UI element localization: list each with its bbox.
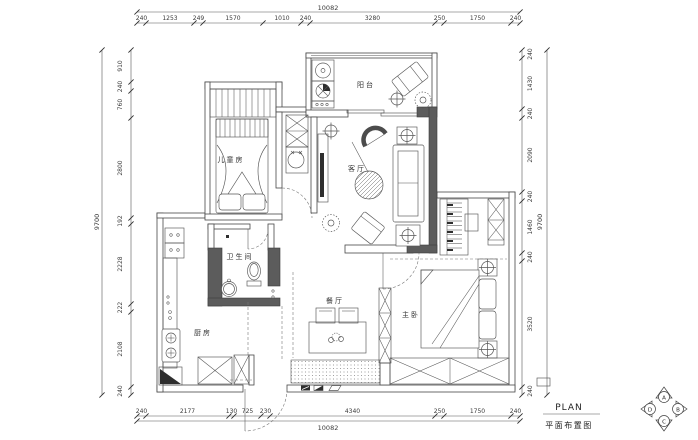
svg-text:240: 240 — [510, 15, 522, 22]
tv — [320, 153, 324, 197]
svg-text:D: D — [648, 408, 652, 414]
ceiling-lamp-icon — [323, 123, 340, 140]
dining-chair — [339, 308, 358, 323]
dining-chair — [316, 308, 335, 323]
dimension-chain-bottom: 10082 240 2177 130 725 230 4340 250 1750… — [136, 408, 522, 432]
sliding-door-panel — [347, 110, 384, 113]
master-bed — [421, 270, 479, 348]
sink-basin — [165, 243, 184, 258]
elevation-marker-c: C — [656, 416, 672, 432]
svg-text:240: 240 — [527, 108, 534, 120]
svg-text:910: 910 — [117, 60, 124, 72]
floorplan-drawing: 10082 240 1253 249 1570 1010 240 3280 25… — [0, 0, 698, 440]
dim-total-bottom: 10082 — [318, 424, 339, 432]
svg-text:725: 725 — [242, 408, 254, 415]
svg-text:250: 250 — [434, 408, 446, 415]
elevation-marker-b: B — [673, 401, 688, 417]
dim-total-right: 9700 — [536, 214, 544, 231]
plant — [415, 92, 431, 108]
svg-text:240: 240 — [527, 385, 534, 397]
label-balcony: 阳台 — [357, 80, 375, 89]
hallway-cabinets — [286, 115, 308, 173]
dimension-chain-top: 10082 240 1253 249 1570 1010 240 3280 25… — [136, 4, 522, 23]
wardrobe — [210, 89, 276, 117]
wash-basin — [288, 152, 304, 168]
svg-text:2090: 2090 — [527, 147, 534, 162]
dimension-chain-left: 9700 910 240 760 2800 192 2228 222 2108 … — [93, 50, 131, 397]
svg-text:1253: 1253 — [162, 15, 177, 22]
svg-text:1430: 1430 — [527, 76, 534, 91]
plan-title-zh: 平面布置图 — [545, 420, 593, 430]
svg-text:240: 240 — [136, 15, 148, 22]
sliding-door-panel — [381, 113, 418, 116]
title-block-box — [537, 378, 550, 386]
dimension-chain-right: 9700 240 1430 240 2090 240 1460 240 3520… — [522, 48, 547, 397]
svg-text:1460: 1460 — [527, 219, 534, 234]
closet — [488, 199, 504, 245]
svg-text:192: 192 — [117, 215, 124, 227]
svg-text:1570: 1570 — [225, 15, 240, 22]
pillow — [479, 279, 496, 309]
svg-text:3280: 3280 — [365, 15, 380, 22]
title-block: PLAN 平面布置图 — [537, 378, 600, 430]
wardrobe — [390, 358, 509, 384]
svg-text:240: 240 — [527, 251, 534, 263]
basin-cabinet — [286, 147, 308, 173]
dim-total-left: 9700 — [93, 214, 101, 231]
toilet-tank — [247, 281, 261, 286]
label-master-bedroom: 主卧 — [402, 310, 420, 319]
elevation-marker-d: D — [641, 401, 656, 417]
wardrobe-hangers — [216, 89, 270, 117]
svg-text:230: 230 — [260, 408, 272, 415]
svg-text:249: 249 — [193, 15, 205, 22]
svg-text:2228: 2228 — [117, 256, 124, 271]
label-kitchen: 厨房 — [194, 328, 212, 337]
plan-title-en: PLAN — [555, 403, 583, 413]
label-bathroom: 卫生间 — [227, 252, 254, 261]
svg-text:B: B — [676, 408, 680, 414]
label-living-room: 客厅 — [348, 164, 366, 173]
svg-text:2177: 2177 — [180, 408, 195, 415]
piano-stool — [465, 214, 478, 231]
living-room-furniture — [318, 123, 424, 247]
kitchen-fixtures — [159, 228, 249, 385]
svg-text:240: 240 — [300, 15, 312, 22]
label-children-bedroom: 儿童房 — [218, 155, 245, 164]
svg-text:1010: 1010 — [274, 15, 289, 22]
svg-text:760: 760 — [117, 99, 124, 111]
svg-text:C: C — [662, 420, 666, 426]
plant — [323, 215, 340, 232]
svg-text:1750: 1750 — [470, 15, 485, 22]
label-dining-room: 餐厅 — [326, 296, 344, 305]
pillow — [219, 194, 241, 210]
sink-basin — [165, 228, 184, 243]
children-bedroom-furniture — [210, 89, 276, 213]
svg-text:2108: 2108 — [117, 341, 124, 356]
svg-text:A: A — [662, 396, 666, 402]
dining-table — [309, 322, 366, 353]
piano-keys — [447, 203, 462, 251]
svg-text:1750: 1750 — [470, 408, 485, 415]
entry-mat — [291, 360, 380, 383]
svg-text:240: 240 — [136, 408, 148, 415]
svg-text:4340: 4340 — [345, 408, 360, 415]
pillow — [243, 194, 265, 210]
pillow — [479, 311, 496, 339]
floor-drain — [226, 235, 229, 238]
toilet — [248, 262, 261, 280]
arc-chair — [359, 123, 386, 146]
svg-text:240: 240 — [527, 191, 534, 203]
svg-text:240: 240 — [527, 48, 534, 60]
svg-text:240: 240 — [510, 408, 522, 415]
elevation-markers: A B C D — [641, 387, 687, 431]
dim-total-top: 10082 — [318, 4, 339, 12]
elevation-marker-a: A — [656, 387, 672, 403]
plan-svg: 10082 240 1253 249 1570 1010 240 3280 25… — [0, 0, 698, 440]
svg-text:240: 240 — [117, 81, 124, 93]
round-rug — [355, 171, 383, 199]
sofa — [393, 145, 424, 222]
armchair — [351, 211, 385, 244]
svg-text:222: 222 — [117, 302, 124, 314]
stove — [162, 329, 180, 362]
svg-text:250: 250 — [434, 15, 446, 22]
svg-text:2800: 2800 — [117, 160, 124, 175]
svg-text:3520: 3520 — [527, 316, 534, 331]
svg-text:240: 240 — [117, 385, 124, 397]
